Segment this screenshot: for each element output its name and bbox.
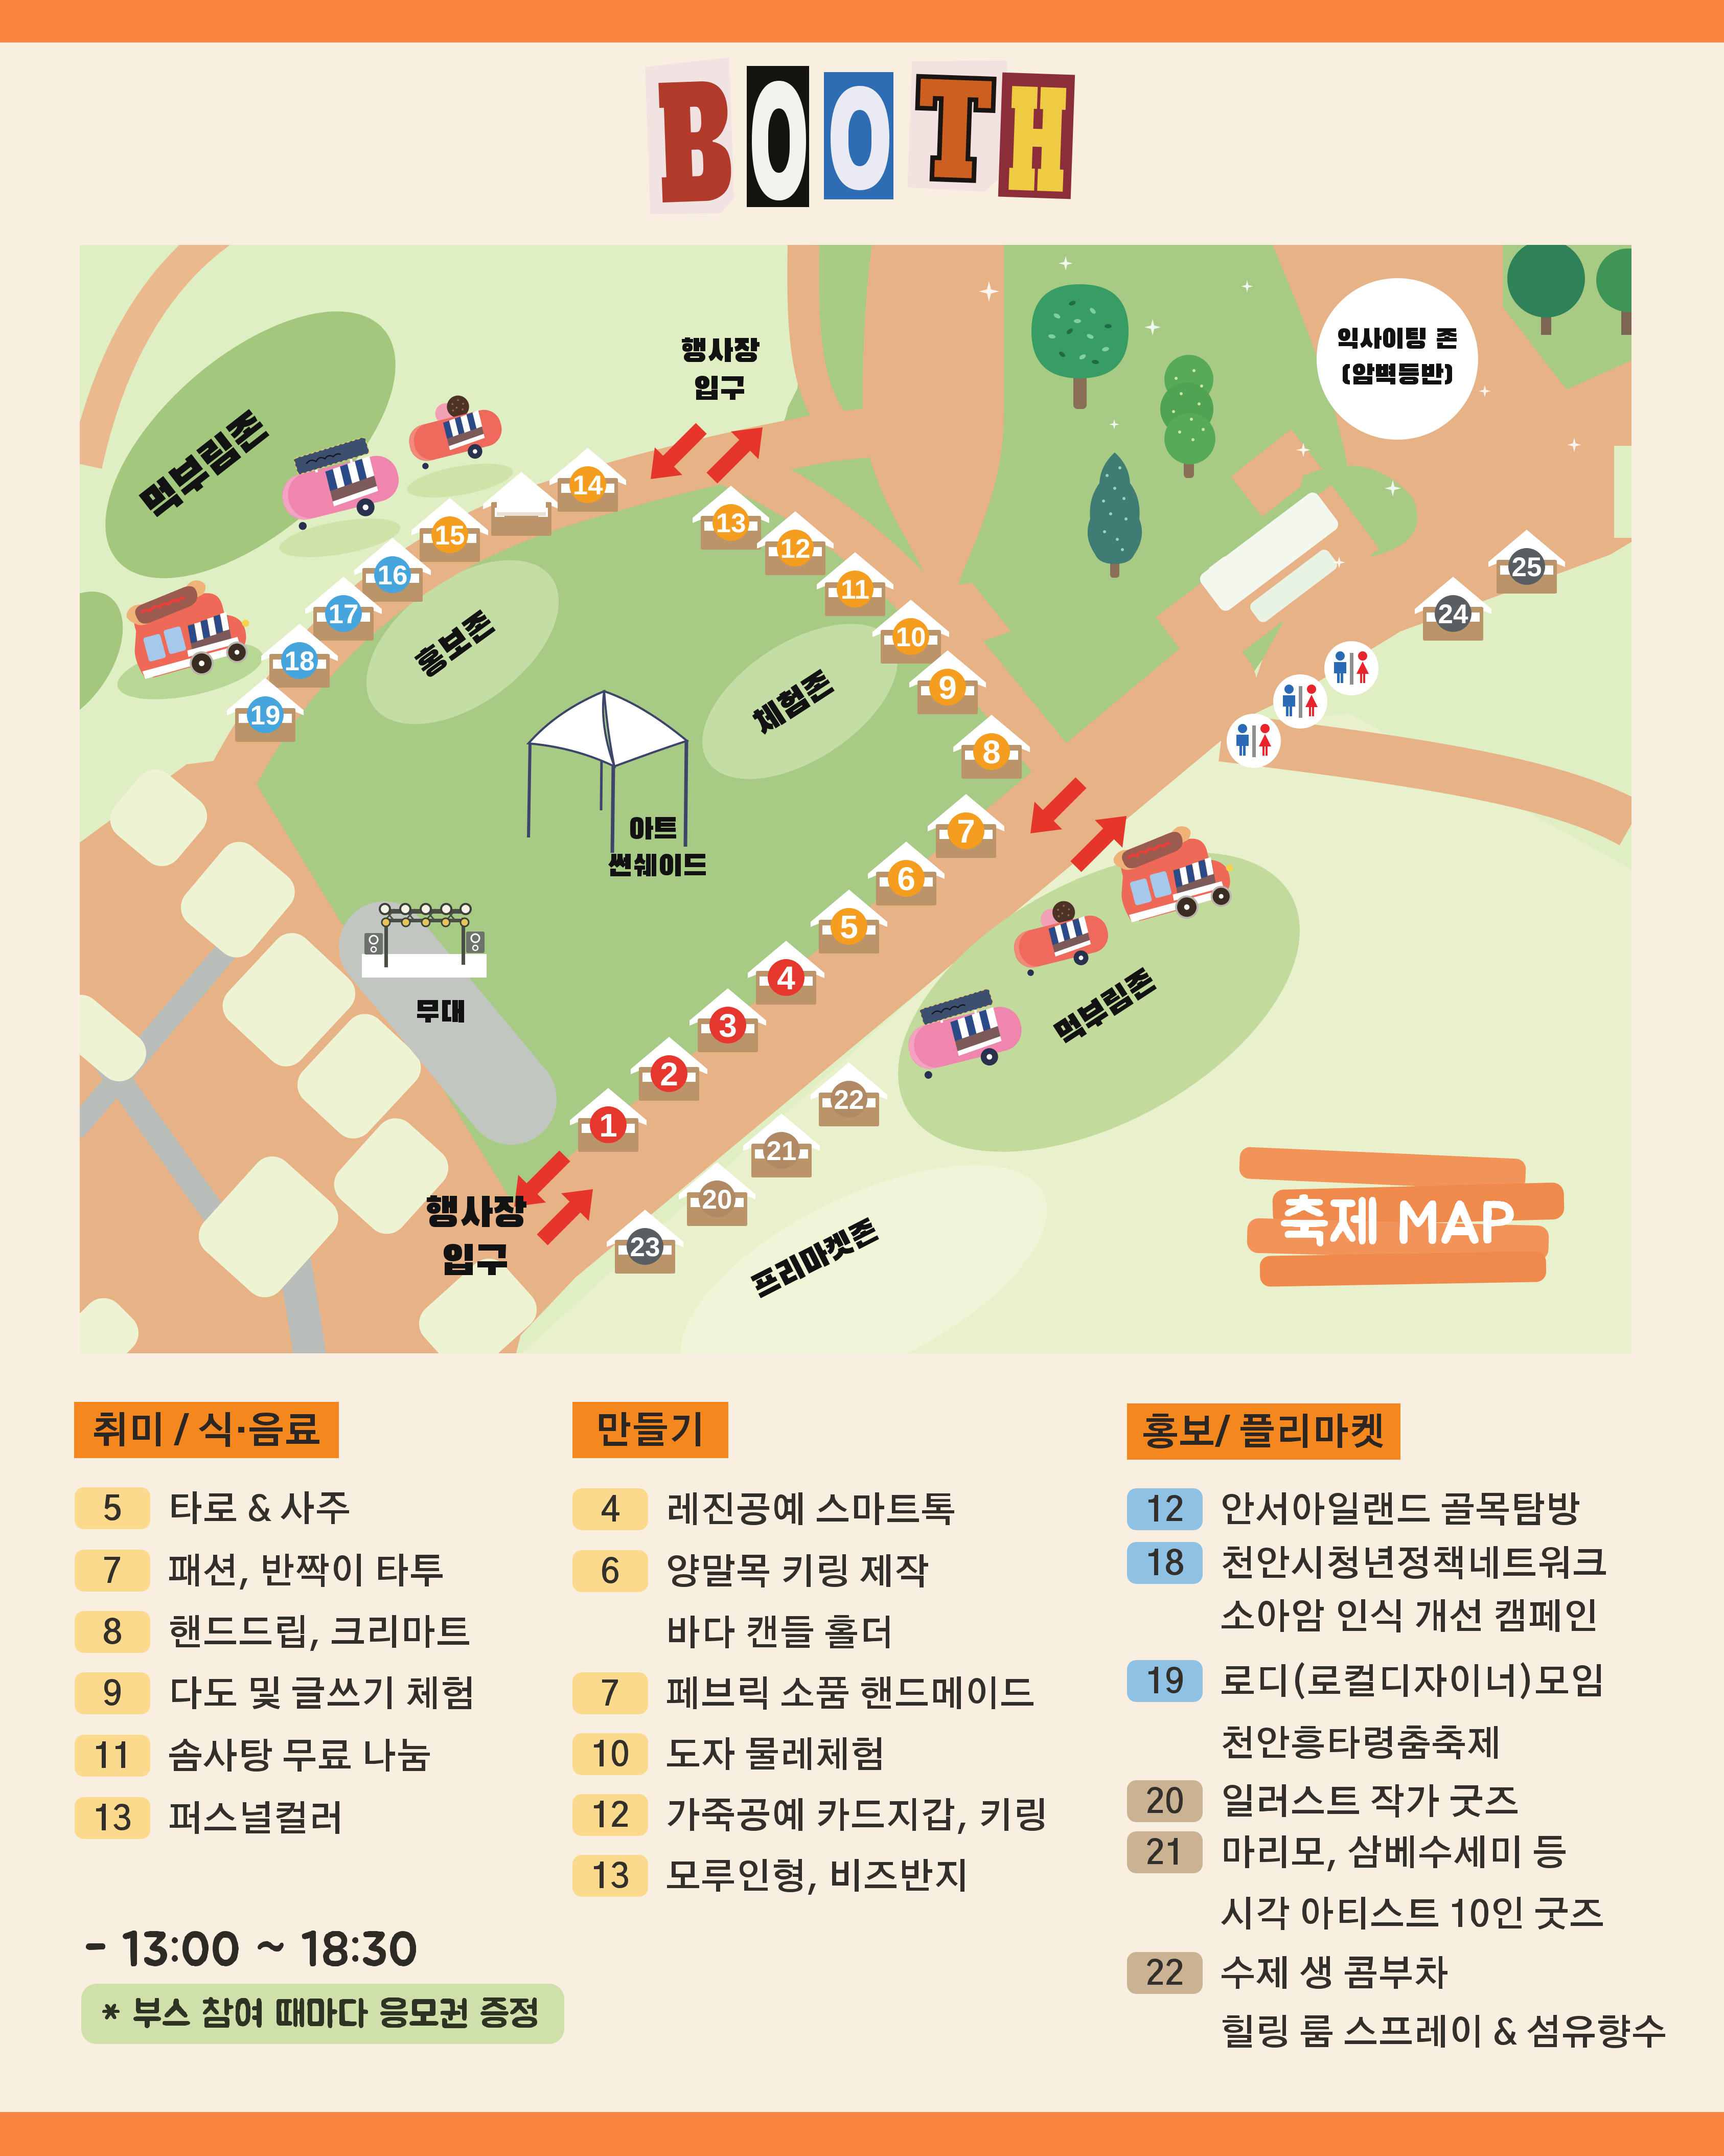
svg-text:15: 15 [435, 520, 465, 551]
svg-text:8: 8 [982, 734, 1001, 770]
svg-text:11: 11 [841, 575, 869, 605]
svg-text:9: 9 [938, 669, 957, 706]
svg-text:2: 2 [660, 1056, 678, 1093]
svg-text:19: 19 [250, 700, 281, 731]
svg-text:18: 18 [285, 646, 315, 676]
svg-text:24: 24 [1438, 599, 1468, 629]
svg-text:12: 12 [780, 534, 811, 564]
svg-text:23: 23 [630, 1232, 660, 1262]
svg-text:14: 14 [573, 470, 603, 501]
svg-text:7: 7 [957, 813, 975, 850]
svg-text:6: 6 [897, 860, 915, 897]
svg-text:16: 16 [378, 560, 408, 591]
svg-text:10: 10 [896, 622, 926, 652]
svg-text:21: 21 [767, 1136, 797, 1166]
svg-text:4: 4 [777, 960, 795, 996]
svg-text:20: 20 [702, 1185, 732, 1215]
svg-text:5: 5 [840, 909, 858, 945]
svg-text:13: 13 [716, 508, 746, 538]
svg-text:25: 25 [1512, 552, 1542, 582]
svg-text:22: 22 [834, 1085, 864, 1115]
svg-text:3: 3 [719, 1007, 737, 1044]
svg-text:17: 17 [329, 599, 359, 629]
svg-text:1: 1 [599, 1107, 617, 1144]
